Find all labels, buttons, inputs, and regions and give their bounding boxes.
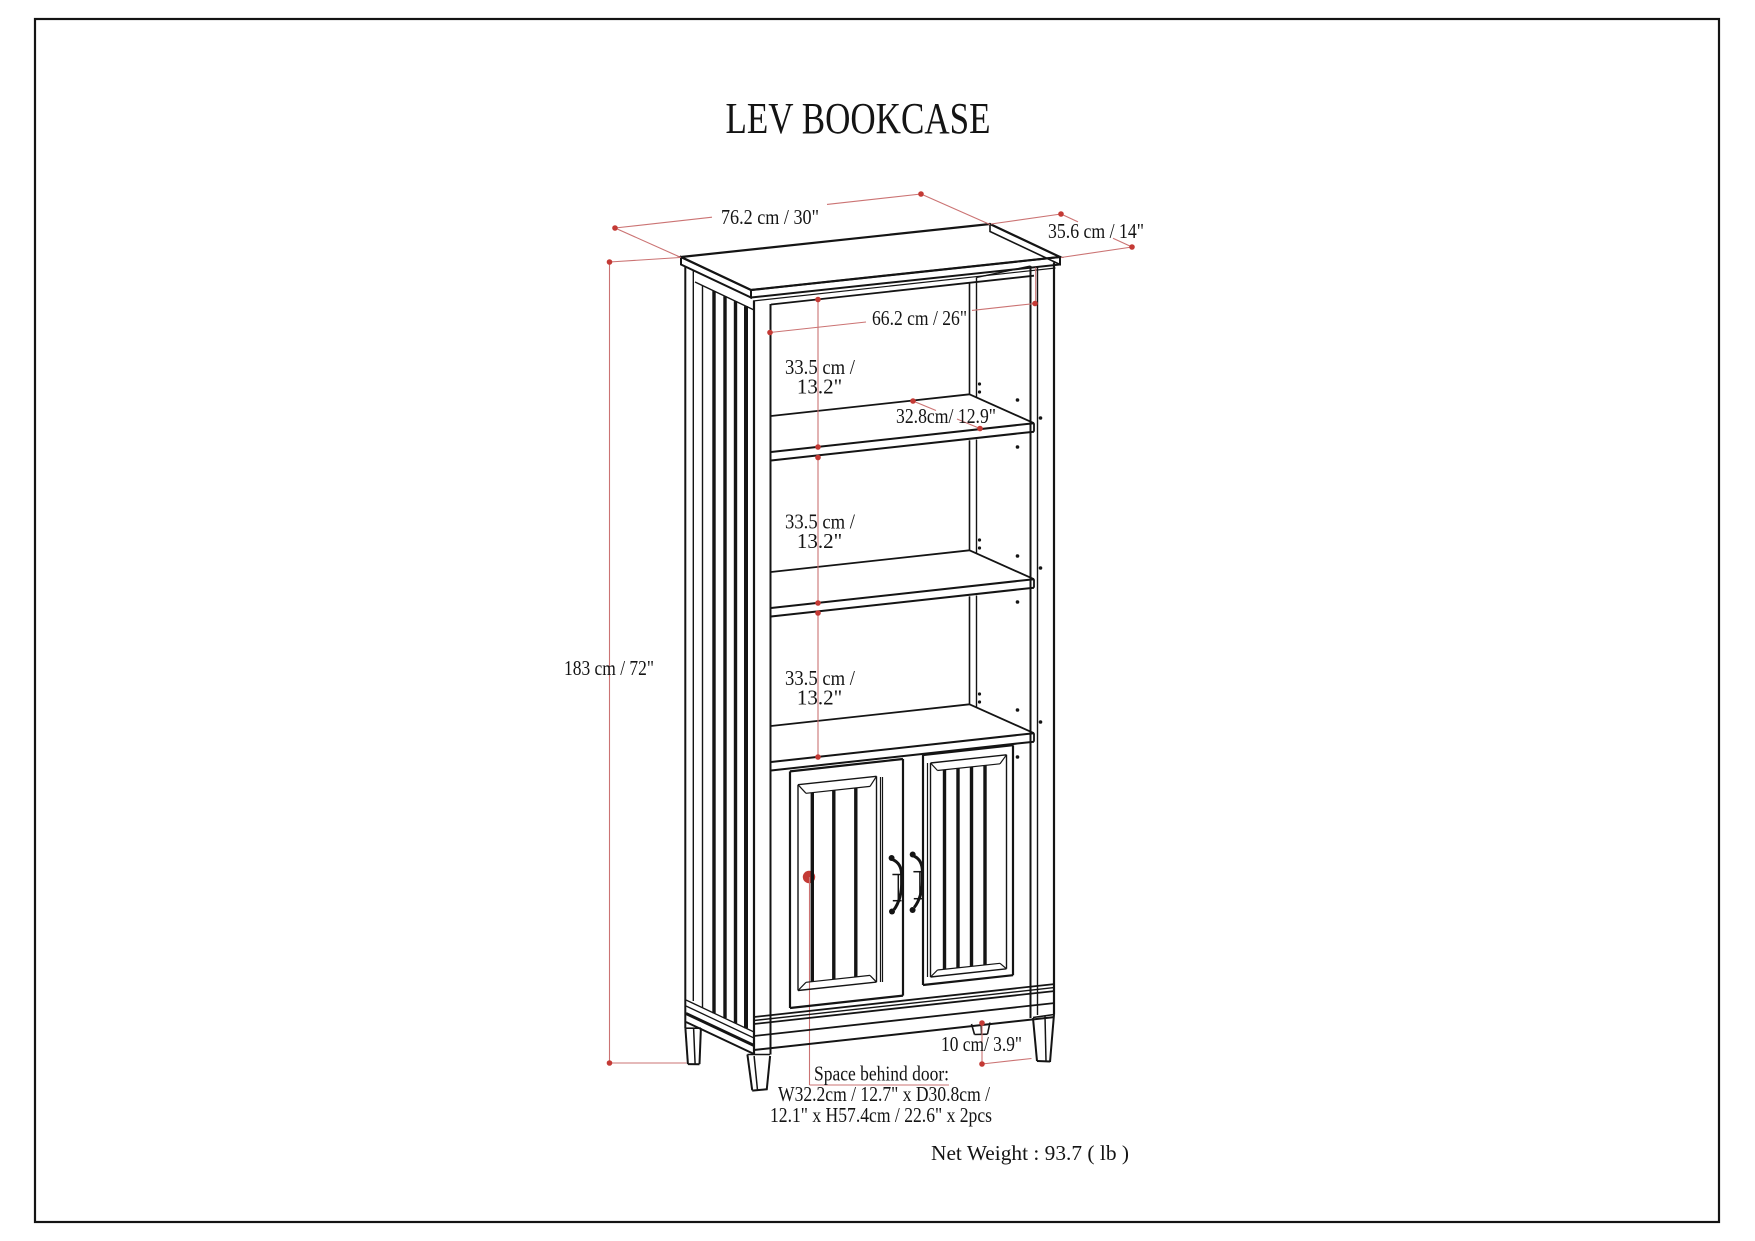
svg-text:32.8cm/ 12.9": 32.8cm/ 12.9" bbox=[896, 404, 996, 428]
svg-text:Net Weight : 93.7 ( lb ): Net Weight : 93.7 ( lb ) bbox=[931, 1141, 1129, 1165]
svg-text:183 cm / 72": 183 cm / 72" bbox=[564, 656, 654, 680]
svg-text:35.6 cm / 14": 35.6 cm / 14" bbox=[1048, 219, 1144, 243]
svg-text:LEV BOOKCASE: LEV BOOKCASE bbox=[726, 94, 991, 143]
svg-text:76.2 cm / 30": 76.2 cm / 30" bbox=[721, 205, 819, 229]
svg-text:13.2": 13.2" bbox=[797, 529, 842, 553]
svg-text:66.2 cm / 26": 66.2 cm / 26" bbox=[872, 306, 967, 330]
svg-text:12.1" x H57.4cm / 22.6" x 2pcs: 12.1" x H57.4cm / 22.6" x 2pcs bbox=[770, 1103, 992, 1127]
svg-text:13.2": 13.2" bbox=[797, 686, 842, 710]
svg-text:10 cm/ 3.9": 10 cm/ 3.9" bbox=[941, 1032, 1022, 1056]
svg-text:13.2": 13.2" bbox=[797, 375, 842, 399]
